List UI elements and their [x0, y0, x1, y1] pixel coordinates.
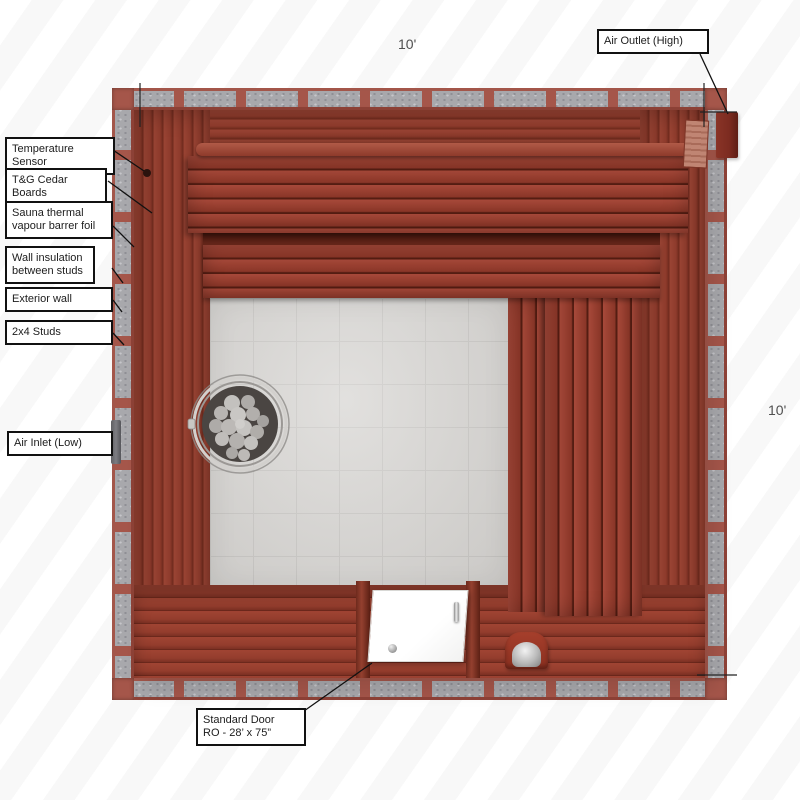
callout-2x4-studs: 2x4 Studs [5, 320, 113, 345]
wall-corner-stud [705, 88, 727, 110]
air-outlet-vent [716, 112, 738, 158]
exterior-wall-top [112, 88, 727, 110]
sauna-heater-rocks [185, 369, 295, 479]
callout-wall-insulation: Wall insulation between studs [5, 246, 95, 284]
door-closer-face [512, 642, 541, 667]
sauna-floorplan-diagram: 10' 10' Temperature Sensor T&G Cedar Boa… [0, 0, 800, 800]
callout-air-inlet: Air Inlet (Low) [7, 431, 113, 456]
exterior-wall-bottom [112, 678, 727, 700]
top-bench-lower-tier [203, 245, 660, 298]
exterior-wall-left [112, 88, 134, 700]
callout-cedar-boards-text: T&G Cedar Boards [12, 174, 68, 199]
dimension-width-label: 10' [398, 36, 416, 52]
callout-air-outlet-text: Air Outlet (High) [604, 35, 683, 47]
callout-standard-door-line2: RO - 28’ x 75” [203, 727, 299, 740]
callout-wall-insulation-text: Wall insulation between studs [12, 252, 83, 277]
callout-standard-door-line1: Standard Door [203, 714, 299, 727]
top-bench-upper-tier [188, 156, 688, 233]
sauna-door-leaf-open [367, 590, 468, 662]
wall-corner-stud [705, 678, 727, 700]
callout-standard-door: Standard Door RO - 28’ x 75” [196, 708, 306, 746]
exterior-wall-right [705, 88, 727, 700]
callout-vapour-barrier: Sauna thermal vapour barrer foil [5, 201, 113, 239]
callout-air-outlet: Air Outlet (High) [597, 29, 709, 54]
callout-exterior-wall-text: Exterior wall [12, 293, 72, 305]
air-outlet-grille [683, 119, 709, 168]
backrest-rail [196, 143, 688, 156]
sauna-interior [134, 110, 705, 678]
door-handle [454, 602, 459, 622]
wall-corner-stud [112, 678, 134, 700]
callout-air-inlet-text: Air Inlet (Low) [14, 437, 82, 449]
callout-exterior-wall: Exterior wall [5, 287, 113, 312]
right-bench-lower-tier [508, 298, 546, 612]
wall-corner-stud [112, 88, 134, 110]
dimension-height-label: 10' [768, 402, 786, 418]
callout-2x4-studs-text: 2x4 Studs [12, 326, 61, 338]
callout-vapour-barrier-text: Sauna thermal vapour barrer foil [12, 207, 95, 232]
door-knob [388, 644, 397, 653]
door-jamb-left [356, 581, 370, 678]
callout-temperature-sensor-text: Temperature Sensor [12, 143, 74, 168]
